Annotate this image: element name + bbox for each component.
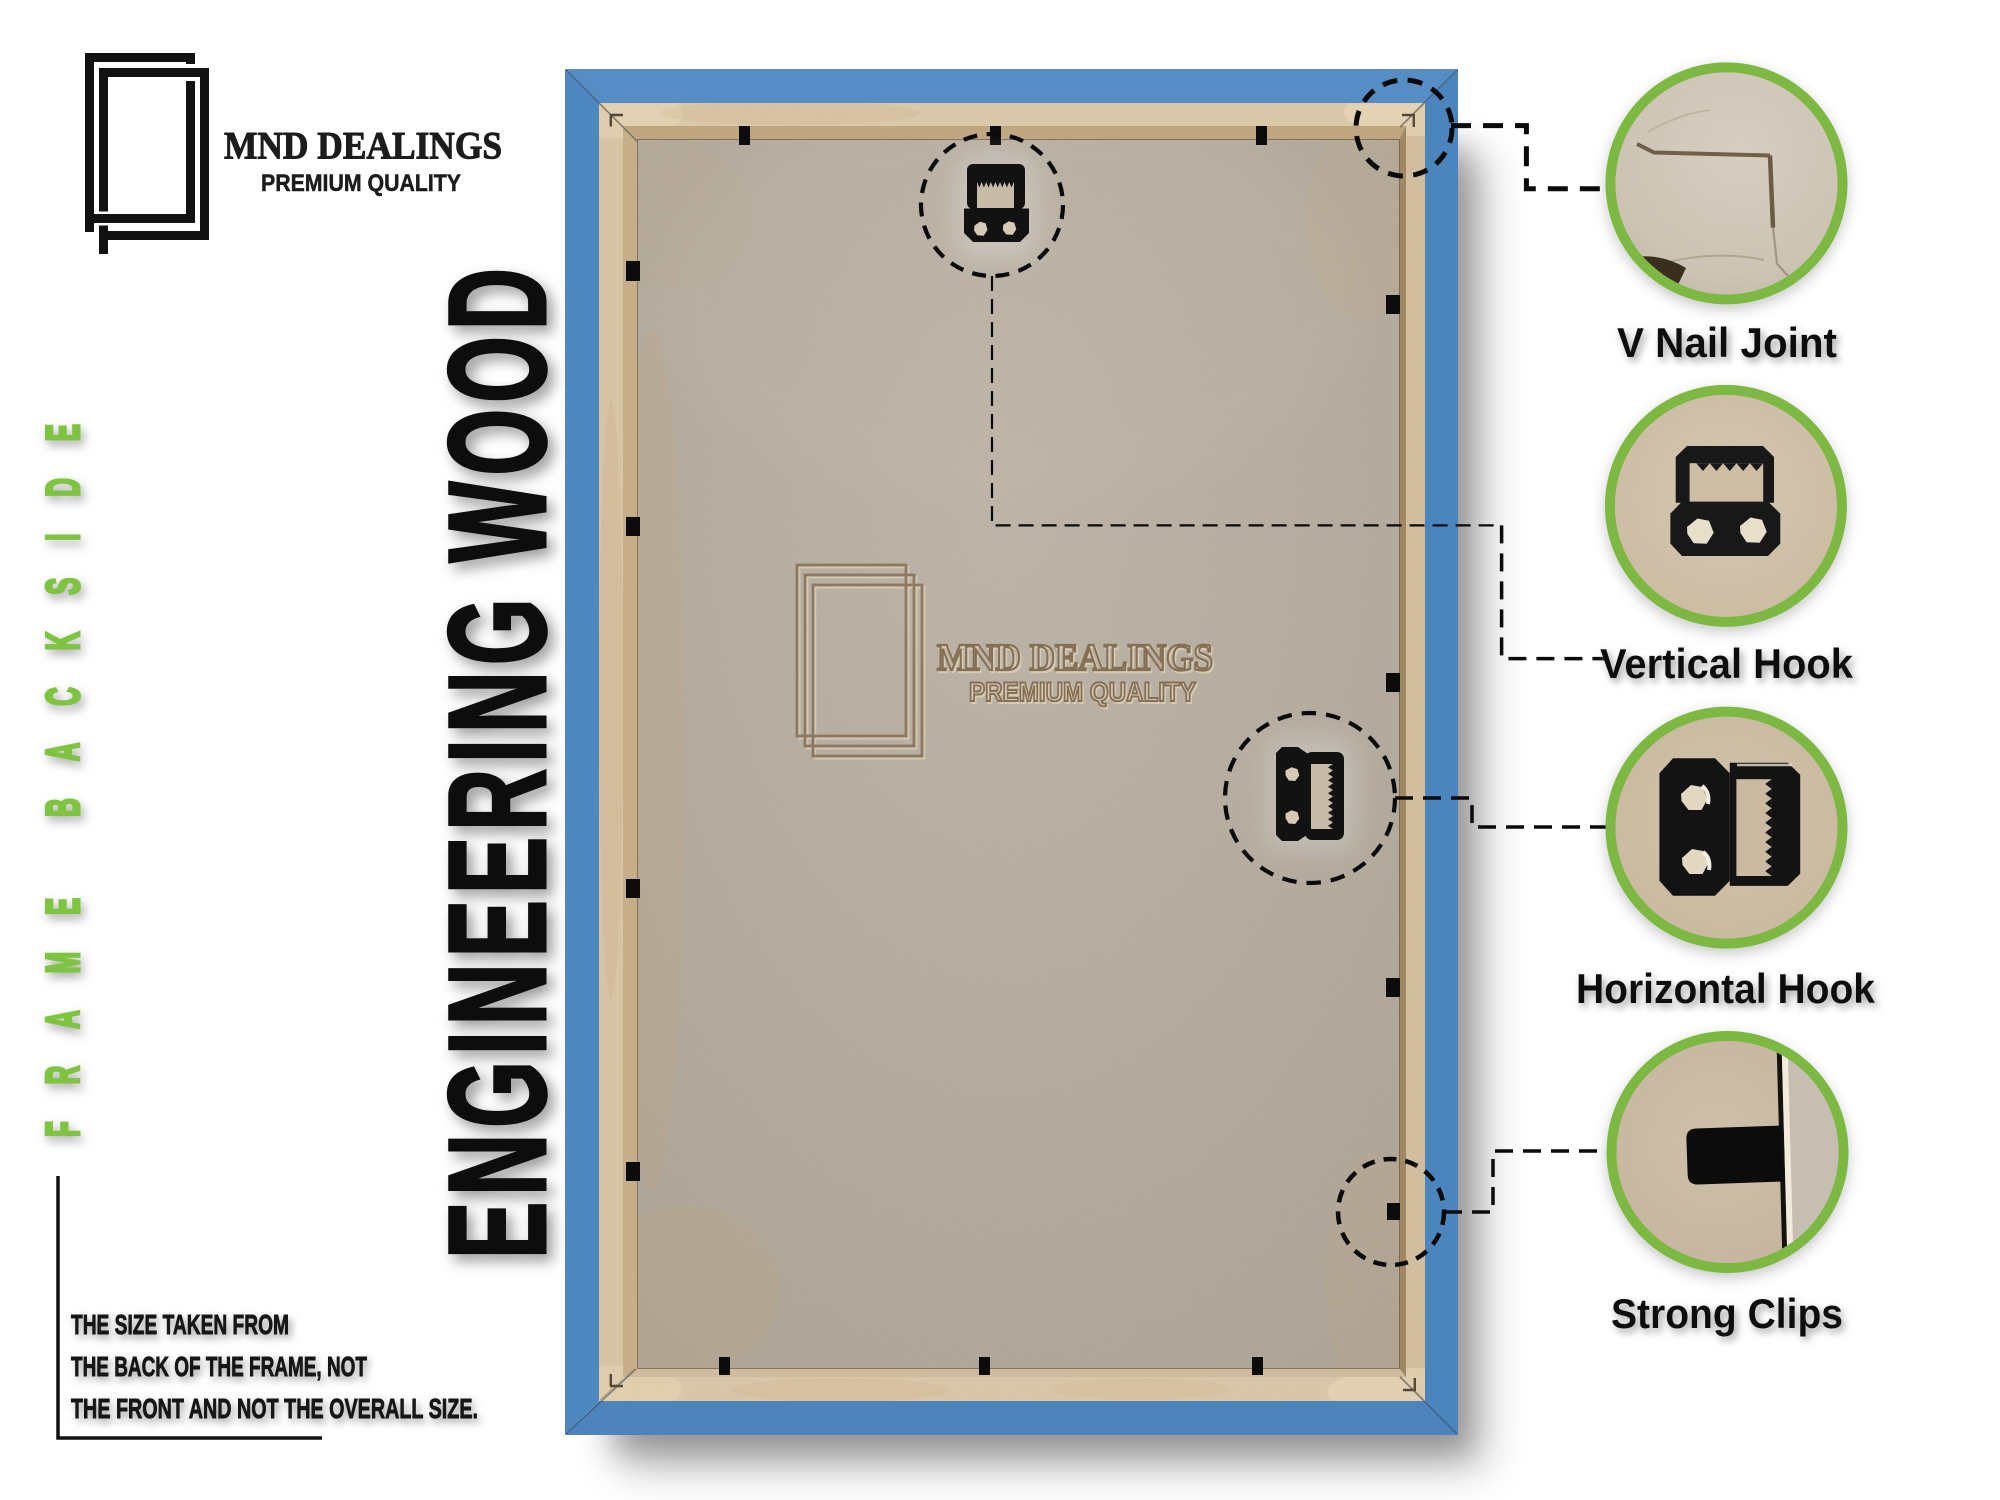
- svg-text:Horizontal Hook: Horizontal Hook: [1576, 965, 1876, 1012]
- svg-text:MND DEALINGS: MND DEALINGS: [937, 637, 1213, 679]
- svg-text:THE SIZE TAKEN FROM: THE SIZE TAKEN FROM: [71, 1309, 289, 1340]
- svg-text:ENGINEERING WOOD: ENGINEERING WOOD: [421, 262, 575, 1259]
- svg-text:PREMIUM QUALITY: PREMIUM QUALITY: [969, 677, 1196, 707]
- svg-text:MND DEALINGS: MND DEALINGS: [224, 125, 502, 168]
- svg-text:THE FRONT AND NOT THE OVERALL: THE FRONT AND NOT THE OVERALL SIZE.: [71, 1393, 478, 1424]
- svg-text:Vertical Hook: Vertical Hook: [1600, 640, 1854, 687]
- svg-text:PREMIUM QUALITY: PREMIUM QUALITY: [261, 170, 461, 197]
- svg-text:THE BACK OF THE FRAME, NOT: THE BACK OF THE FRAME, NOT: [71, 1351, 367, 1382]
- svg-text:V Nail Joint: V Nail Joint: [1617, 319, 1837, 366]
- svg-text:FRAME BACKSIDE: FRAME BACKSIDE: [38, 387, 90, 1137]
- svg-text:Strong Clips: Strong Clips: [1611, 1290, 1843, 1337]
